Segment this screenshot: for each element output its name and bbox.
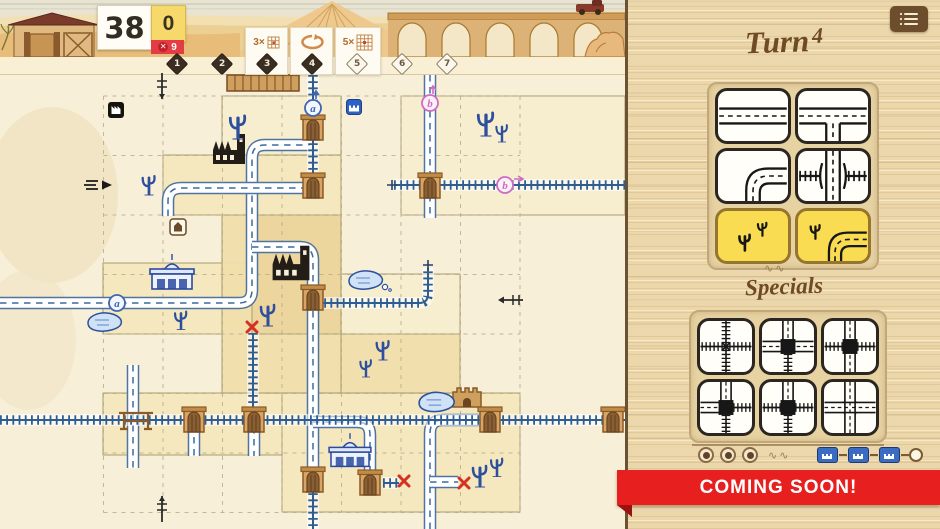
turn-diamond-number: 4 [309, 59, 315, 69]
special-token [742, 447, 758, 463]
gate-icon [601, 407, 625, 432]
game-board-area: aabb 38 0 ✕ 9 3×5× 1234567 [0, 0, 625, 529]
special-token [698, 447, 714, 463]
turn-diamond-number: 3 [264, 59, 270, 69]
specials-heading: Specials [628, 269, 940, 306]
die-tile-desert[interactable] [715, 208, 791, 264]
special-tile-3[interactable]: .d{stroke-dasharray:7,6;stroke-width:2.4… [821, 318, 879, 375]
gate-icon [242, 407, 266, 432]
turn-label: Turn [744, 23, 810, 60]
card-label [299, 32, 325, 52]
svg-text:a: a [310, 103, 316, 115]
special-tile-4[interactable]: .d{stroke-dasharray:7,6;stroke-width:2.4… [697, 379, 755, 436]
special-use-tokens [698, 447, 758, 463]
station-chain-icon [879, 447, 900, 463]
card-label: 5× [343, 32, 373, 52]
die-tile-desert-curve[interactable] [795, 208, 871, 264]
svg-text:a: a [114, 298, 120, 310]
turn-diamond-number: 7 [444, 59, 450, 69]
card-label: 3× [253, 32, 279, 52]
penalty-count: 9 [171, 42, 177, 53]
badge-house-icon [170, 219, 186, 235]
special-tile-2[interactable]: .d{stroke-dasharray:7,6;stroke-width:2.4… [759, 318, 817, 375]
panel-divider [692, 444, 884, 446]
coming-soon-ribbon: COMING SOON! [617, 470, 940, 505]
pond-icon [419, 392, 454, 411]
side-panel: Turn4 ∿∿ Specials .d{stroke-dasharray:7,… [625, 0, 940, 529]
shack-icon [227, 75, 299, 91]
die-tile-road-straight[interactable] [715, 88, 791, 144]
specials-tray: .d{stroke-dasharray:7,6;stroke-width:2.4… [689, 310, 887, 443]
station-chain-icon [817, 447, 838, 463]
gate-icon [301, 115, 325, 140]
chain-link [901, 454, 909, 456]
bonus-value: 0 [163, 12, 175, 36]
turn-diamond-number: 1 [174, 59, 180, 69]
turn-number: 4 [812, 23, 824, 48]
die-tile-road-t[interactable] [795, 88, 871, 144]
chain-link [839, 454, 847, 456]
special-tile-1[interactable]: .d{stroke-dasharray:7,6;stroke-width:2.4… [697, 318, 755, 375]
badge-factory-icon [108, 102, 124, 118]
turn-diamond-number: 2 [219, 59, 225, 69]
gate-icon [358, 470, 382, 495]
turn-heading: Turn4 [627, 19, 940, 66]
score-value: 38 [104, 11, 144, 45]
score-box: 38 [97, 5, 152, 50]
flourish-ornament: ∿∿ [768, 449, 790, 462]
gate-icon [478, 407, 502, 432]
card-multiplier: 5× [343, 37, 354, 48]
penalty-badge: ✕ 9 [151, 40, 184, 54]
svg-text:b: b [502, 180, 508, 192]
gate-icon [301, 285, 325, 310]
special-tile-5[interactable]: .d{stroke-dasharray:7,6;stroke-width:2.4… [759, 379, 817, 436]
portal-marker-a: a [109, 295, 125, 311]
card-multiplier: 3× [253, 37, 264, 48]
svg-text:b: b [427, 98, 433, 110]
gate-icon [301, 467, 325, 492]
badge-station-icon [347, 100, 362, 115]
gate-icon [301, 173, 325, 198]
station-chain [816, 447, 923, 463]
railroad-board-canvas[interactable]: aabb [0, 0, 625, 529]
special-token [720, 447, 736, 463]
chain-end-circle [909, 448, 923, 462]
station-chain-icon [848, 447, 869, 463]
gate-icon [418, 173, 442, 198]
turn-diamond-number: 6 [399, 59, 405, 69]
gate-icon [182, 407, 206, 432]
turn-diamond-number: 5 [354, 59, 360, 69]
die-tile-overpass[interactable] [795, 148, 871, 204]
fort-icon [453, 388, 481, 407]
coming-soon-text: COMING SOON! [700, 477, 858, 499]
bonus-box: 0 [151, 5, 186, 42]
dice-tray [707, 82, 879, 270]
chain-link [870, 454, 878, 456]
die-tile-road-curve[interactable] [715, 148, 791, 204]
pond-icon [88, 313, 121, 331]
x-circle-icon: ✕ [158, 42, 168, 52]
special-tile-6[interactable]: .d{stroke-dasharray:7,6;stroke-width:2.4… [821, 379, 879, 436]
